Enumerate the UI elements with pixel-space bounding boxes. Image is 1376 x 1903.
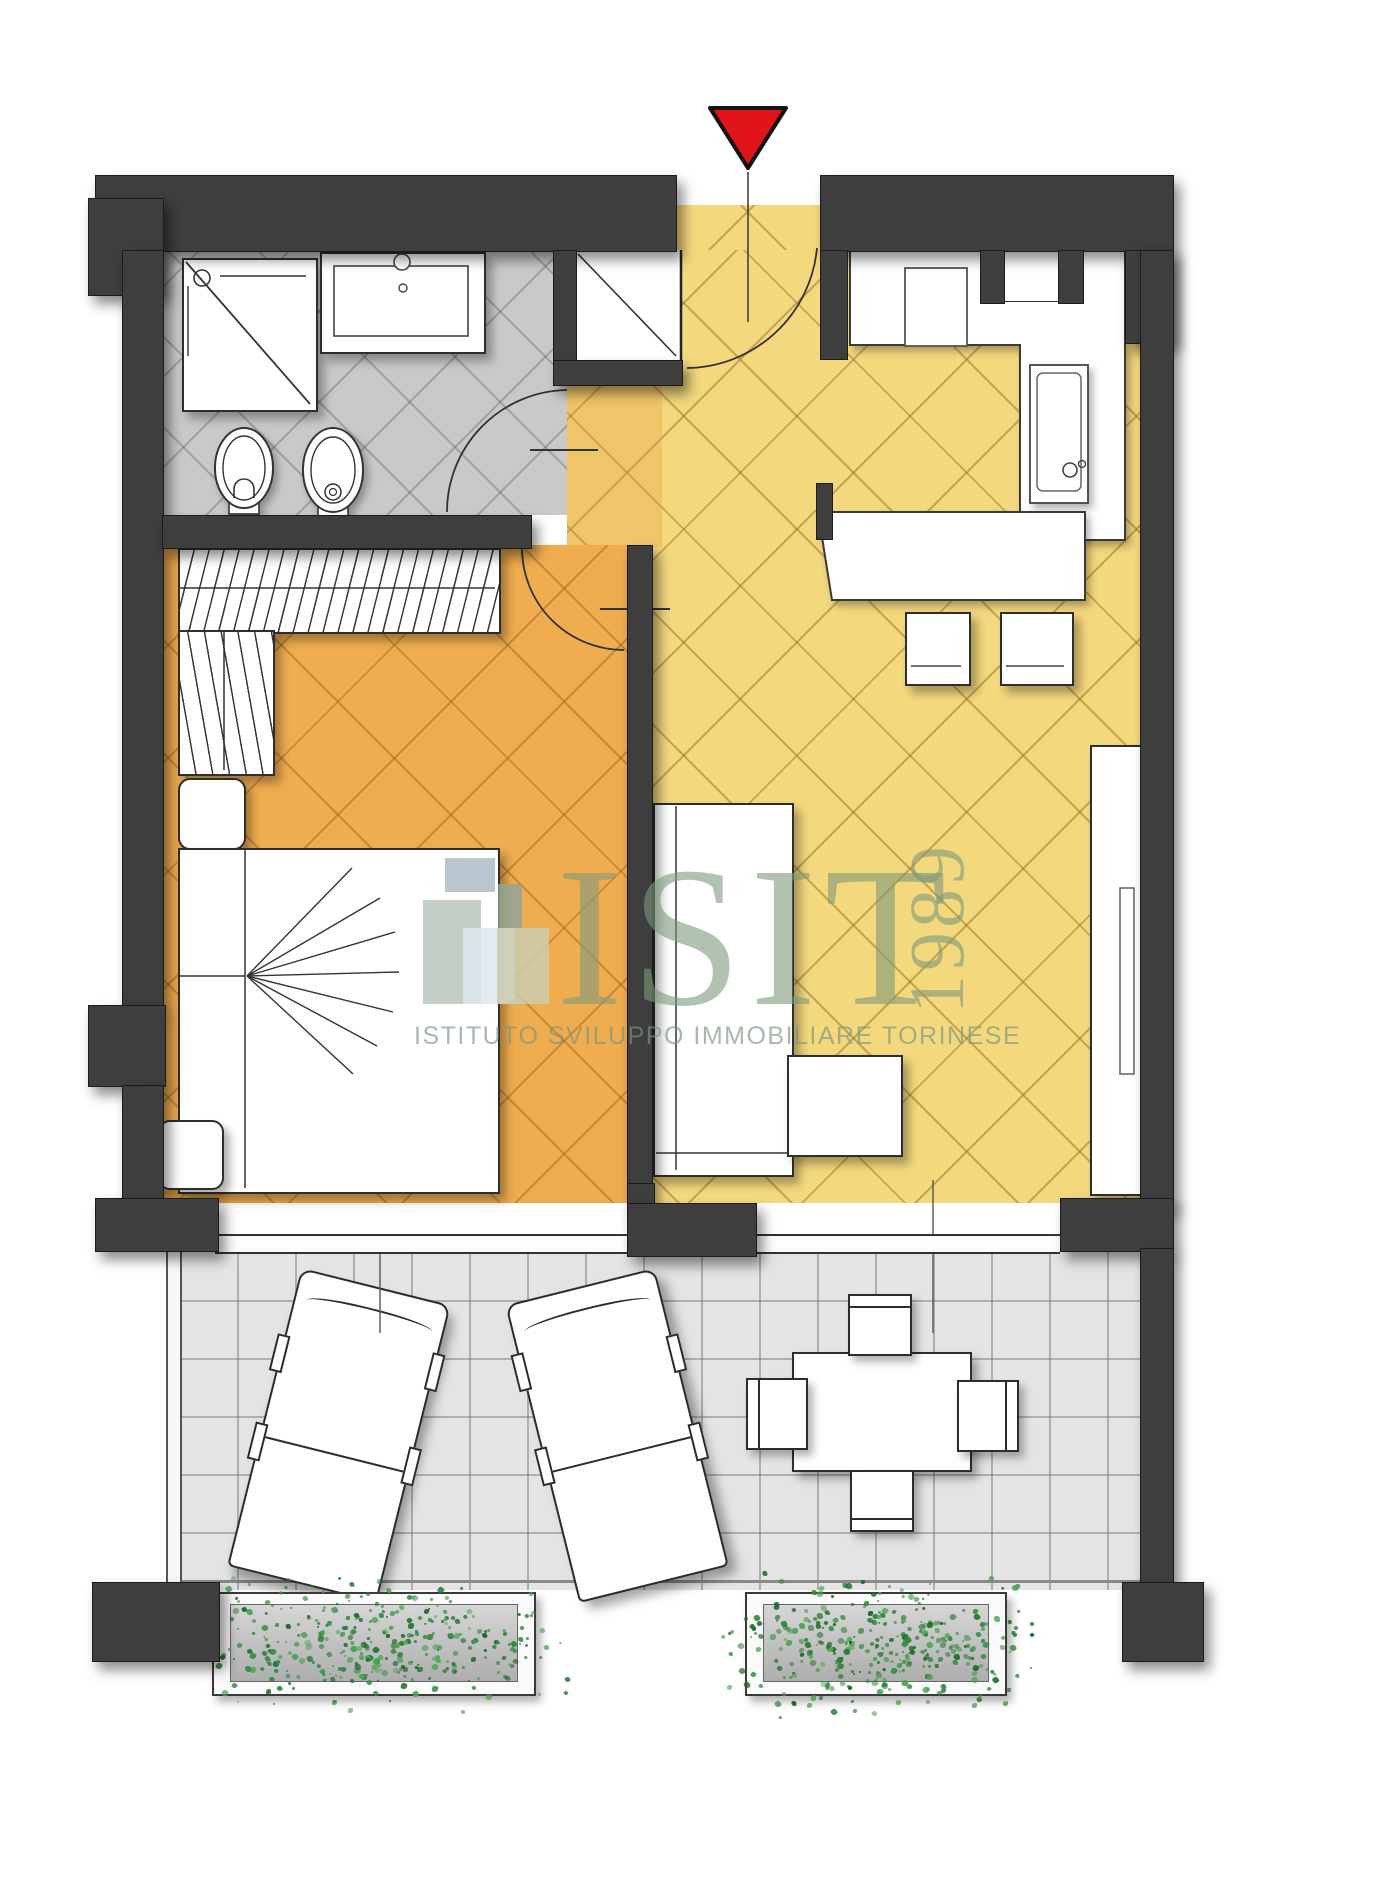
foliage-speck: [853, 1635, 856, 1638]
foliage-speck: [970, 1646, 976, 1652]
foliage-speck: [424, 1652, 428, 1656]
foliage-speck: [984, 1622, 989, 1627]
foliage-speck: [462, 1614, 468, 1620]
foliage-speck: [318, 1643, 325, 1650]
foliage-speck: [876, 1689, 884, 1697]
foliage-speck: [824, 1620, 830, 1626]
foliage-speck: [932, 1620, 939, 1627]
foliage-speck: [851, 1699, 855, 1703]
foliage-speck: [915, 1608, 918, 1611]
foliage-speck: [344, 1655, 346, 1657]
foliage-speck: [265, 1611, 268, 1614]
foliage-speck: [325, 1636, 330, 1641]
foliage-speck: [790, 1662, 794, 1666]
foliage-speck: [359, 1654, 365, 1660]
foliage-speck: [461, 1637, 467, 1643]
foliage-speck: [225, 1585, 233, 1593]
foliage-speck: [756, 1620, 763, 1627]
foliage-speck: [799, 1648, 804, 1653]
foliage-speck: [965, 1661, 971, 1667]
foliage-speck: [491, 1645, 497, 1651]
shower-drain: [194, 270, 210, 286]
foliage-speck: [815, 1667, 820, 1672]
foliage-speck: [483, 1656, 487, 1660]
foliage-speck: [236, 1643, 243, 1650]
foliage-speck: [286, 1624, 291, 1629]
foliage-speck: [992, 1676, 1000, 1684]
foliage-speck: [359, 1618, 363, 1622]
foliage-speck: [364, 1647, 369, 1652]
foliage-speck: [430, 1598, 434, 1602]
foliage-speck: [398, 1605, 404, 1611]
foliage-speck: [273, 1669, 278, 1674]
foliage-speck: [410, 1634, 413, 1637]
foliage-speck: [385, 1656, 388, 1659]
foliage-speck: [877, 1600, 880, 1603]
planter-foliage-left: [180, 1528, 572, 1754]
foliage-speck: [898, 1659, 901, 1662]
foliage-speck: [415, 1629, 418, 1632]
foliage-speck: [298, 1658, 305, 1665]
foliage-speck: [338, 1667, 342, 1671]
entrance-arrow-icon: [690, 96, 810, 176]
foliage-speck: [925, 1652, 929, 1656]
foliage-speck: [839, 1615, 845, 1621]
foliage-speck: [468, 1627, 471, 1630]
foliage-speck: [374, 1668, 380, 1674]
foliage-speck: [791, 1672, 797, 1678]
foliage-speck: [290, 1606, 293, 1609]
foliage-speck: [513, 1649, 517, 1653]
foliage-speck: [338, 1676, 342, 1680]
foliage-speck: [432, 1632, 436, 1636]
foliage-speck: [881, 1647, 885, 1651]
foliage-speck: [380, 1605, 384, 1609]
foliage-speck: [377, 1680, 380, 1683]
foliage-speck: [773, 1658, 779, 1664]
foliage-speck: [413, 1640, 416, 1643]
foliage-speck: [899, 1671, 901, 1673]
foliage-speck: [930, 1636, 933, 1639]
foliage-speck: [738, 1667, 746, 1675]
foliage-speck: [285, 1586, 288, 1589]
foliage-speck: [264, 1637, 268, 1641]
foliage-speck: [782, 1676, 786, 1680]
foliage-speck: [762, 1571, 767, 1576]
foliage-speck: [461, 1665, 465, 1669]
foliage-speck: [935, 1649, 939, 1653]
foliage-speck: [355, 1663, 361, 1669]
foliage-speck: [543, 1644, 550, 1651]
closet-diagonal: [578, 254, 676, 356]
foliage-speck: [819, 1662, 826, 1669]
foliage-speck: [921, 1597, 924, 1600]
foliage-speck: [503, 1628, 506, 1631]
foliage-speck: [972, 1702, 978, 1708]
foliage-speck: [853, 1672, 856, 1675]
foliage-speck: [979, 1663, 984, 1668]
foliage-speck: [729, 1652, 734, 1657]
foliage-speck: [935, 1628, 940, 1633]
foliage-speck: [791, 1608, 796, 1613]
foliage-speck: [348, 1708, 353, 1713]
foliage-speck: [786, 1640, 793, 1647]
foliage-speck: [286, 1670, 288, 1672]
foliage-speck: [366, 1679, 372, 1685]
foliage-speck: [985, 1667, 990, 1672]
foliage-speck: [296, 1623, 300, 1627]
foliage-speck: [359, 1674, 364, 1679]
foliage-speck: [520, 1626, 526, 1632]
foliage-speck: [468, 1680, 471, 1683]
foliage-speck: [397, 1657, 404, 1664]
foliage-speck: [471, 1657, 476, 1662]
foliage-speck: [459, 1632, 463, 1636]
foliage-speck: [524, 1655, 528, 1659]
foliage-speck: [221, 1689, 228, 1696]
foliage-speck: [292, 1687, 296, 1691]
foliage-speck: [228, 1648, 231, 1651]
foliage-speck: [330, 1677, 335, 1682]
foliage-speck: [454, 1618, 460, 1624]
foliage-speck: [807, 1625, 814, 1632]
foliage-speck: [804, 1641, 812, 1649]
kitchen-wall-niche: [1003, 250, 1060, 302]
foliage-speck: [871, 1710, 878, 1717]
foliage-speck: [962, 1639, 965, 1642]
foliage-speck: [496, 1661, 501, 1666]
foliage-speck: [721, 1634, 727, 1640]
foliage-speck: [918, 1602, 921, 1605]
foliage-speck: [260, 1624, 268, 1632]
foliage-speck: [270, 1603, 273, 1606]
foliage-speck: [778, 1646, 783, 1651]
foliage-speck: [887, 1584, 891, 1588]
foliage-speck: [386, 1616, 388, 1618]
foliage-speck: [251, 1619, 257, 1625]
foliage-speck: [331, 1606, 338, 1613]
foliage-speck: [799, 1660, 803, 1664]
foliage-speck: [870, 1590, 878, 1598]
foliage-speck: [737, 1642, 745, 1650]
vanity-tap: [394, 254, 410, 270]
wall-bedroom-living: [627, 545, 653, 1207]
foliage-speck: [539, 1628, 545, 1634]
foliage-speck: [467, 1646, 473, 1652]
foliage-speck: [790, 1700, 796, 1706]
foliage-speck: [335, 1675, 337, 1677]
foliage-speck: [899, 1588, 904, 1593]
foliage-speck: [781, 1691, 787, 1697]
foliage-speck: [279, 1608, 282, 1611]
foliage-speck: [923, 1632, 928, 1637]
wall-left-upper: [122, 250, 164, 1009]
foliage-speck: [807, 1619, 811, 1623]
foliage-speck: [1030, 1632, 1036, 1638]
foliage-speck: [532, 1610, 536, 1614]
foliage-speck: [424, 1623, 427, 1626]
foliage-speck: [518, 1613, 521, 1616]
foliage-speck: [896, 1634, 900, 1638]
foliage-speck: [756, 1646, 762, 1652]
foliage-speck: [815, 1631, 823, 1639]
foliage-speck: [1001, 1587, 1006, 1592]
wall-bath-bedroom: [162, 515, 532, 549]
foliage-speck: [888, 1651, 893, 1656]
foliage-speck: [808, 1650, 811, 1653]
foliage-speck: [537, 1692, 541, 1696]
toilet: [215, 428, 273, 514]
foliage-speck: [342, 1650, 345, 1653]
foliage-speck: [231, 1682, 238, 1689]
foliage-speck: [935, 1663, 939, 1667]
foliage-speck: [816, 1612, 823, 1619]
terrace-right-wall: [1140, 1248, 1174, 1590]
foliage-speck: [953, 1653, 960, 1660]
foliage-speck: [837, 1673, 845, 1681]
foliage-speck: [809, 1659, 817, 1667]
foliage-speck: [867, 1618, 873, 1624]
sink-basin: [1037, 373, 1081, 491]
foliage-speck: [728, 1632, 731, 1635]
foliage-speck: [953, 1660, 958, 1665]
foliage-speck: [447, 1626, 451, 1630]
foliage-speck: [371, 1616, 379, 1624]
foliage-speck: [431, 1662, 439, 1670]
foliage-speck: [839, 1680, 846, 1687]
foliage-speck: [973, 1613, 981, 1621]
foliage-speck: [938, 1656, 943, 1661]
foliage-speck: [340, 1632, 346, 1638]
foliage-speck: [437, 1649, 440, 1652]
foliage-speck: [476, 1676, 480, 1680]
foliage-speck: [338, 1577, 342, 1581]
foliage-speck: [927, 1593, 930, 1596]
foliage-speck: [295, 1675, 300, 1680]
foliage-speck: [421, 1643, 429, 1651]
foliage-speck: [503, 1632, 508, 1637]
foliage-speck: [810, 1695, 816, 1701]
foliage-speck: [483, 1649, 487, 1653]
foliage-speck: [859, 1671, 862, 1674]
bedroom-door-arc: [522, 548, 624, 650]
foliage-speck: [887, 1687, 891, 1691]
foliage-speck: [367, 1636, 370, 1639]
foliage-speck: [365, 1592, 370, 1597]
foliage-speck: [1029, 1667, 1032, 1670]
foliage-speck: [229, 1616, 234, 1621]
foliage-speck: [929, 1582, 932, 1585]
foliage-speck: [276, 1659, 282, 1665]
foliage-speck: [980, 1653, 987, 1660]
foliage-speck: [248, 1582, 252, 1586]
foliage-speck: [400, 1633, 405, 1638]
niche-tab-left: [980, 250, 1005, 304]
foliage-speck: [433, 1614, 437, 1618]
foliage-speck: [348, 1582, 354, 1588]
foliage-speck: [999, 1645, 1005, 1651]
foliage-speck: [539, 1655, 543, 1659]
foliage-speck: [287, 1577, 291, 1581]
foliage-speck: [877, 1592, 881, 1596]
foliage-speck: [389, 1610, 395, 1616]
foliage-speck: [850, 1603, 854, 1607]
foliage-speck: [858, 1628, 865, 1635]
foliage-speck: [502, 1656, 507, 1661]
wall-closet-bottom: [553, 360, 683, 386]
foliage-speck: [901, 1621, 906, 1626]
foliage-speck: [873, 1656, 877, 1660]
foliage-speck: [975, 1631, 982, 1638]
foliage-speck: [894, 1652, 898, 1656]
foliage-speck: [389, 1700, 391, 1702]
foliage-speck: [914, 1635, 920, 1641]
foliage-speck: [417, 1667, 422, 1672]
foliage-speck: [961, 1609, 965, 1613]
foliage-speck: [907, 1683, 913, 1689]
wall-top-right: [820, 175, 1174, 252]
foliage-speck: [853, 1709, 857, 1713]
foliage-speck: [1013, 1625, 1019, 1631]
foliage-speck: [390, 1648, 397, 1655]
foliage-speck: [852, 1641, 855, 1644]
foliage-speck: [460, 1587, 464, 1591]
foliage-speck: [447, 1632, 454, 1639]
foliage-speck: [826, 1612, 830, 1616]
foliage-speck: [809, 1654, 813, 1658]
wall-entrance-right-jamb: [820, 250, 848, 360]
foliage-speck: [347, 1635, 353, 1641]
foliage-speck: [372, 1645, 380, 1653]
foliage-speck: [981, 1627, 985, 1631]
foliage-speck: [563, 1690, 568, 1695]
kitchen-peninsula-table: [818, 512, 1085, 600]
foliage-speck: [891, 1668, 899, 1676]
foliage-speck: [233, 1658, 236, 1661]
foliage-speck: [273, 1703, 276, 1706]
foliage-speck: [770, 1634, 776, 1640]
foliage-speck: [370, 1670, 373, 1673]
foliage-speck: [344, 1642, 348, 1646]
foliage-speck: [525, 1644, 529, 1648]
foliage-speck: [963, 1645, 967, 1649]
foliage-speck: [401, 1682, 408, 1689]
foliage-speck: [511, 1641, 518, 1648]
foliage-speck: [1012, 1631, 1016, 1635]
foliage-speck: [927, 1656, 933, 1662]
foliage-speck: [883, 1621, 888, 1626]
foliage-speck: [529, 1591, 534, 1596]
foliage-speck: [428, 1676, 432, 1680]
foliage-speck: [869, 1663, 874, 1668]
foliage-speck: [812, 1590, 817, 1595]
foliage-speck: [889, 1638, 894, 1643]
foliage-speck: [847, 1685, 853, 1691]
foliage-speck: [845, 1583, 852, 1590]
foliage-speck: [971, 1676, 979, 1684]
foliage-speck: [268, 1676, 274, 1682]
foliage-speck: [233, 1607, 240, 1614]
foliage-speck: [921, 1606, 926, 1611]
wall-top-left: [95, 175, 677, 252]
foliage-speck: [230, 1575, 237, 1582]
foliage-speck: [778, 1578, 785, 1585]
foliage-speck: [744, 1681, 751, 1688]
foliage-speck: [504, 1676, 511, 1683]
entrance-door-arc: [687, 248, 817, 368]
foliage-speck: [252, 1632, 256, 1636]
foliage-speck: [375, 1602, 379, 1606]
foliage-speck: [431, 1620, 434, 1623]
sideboard-handle: [1120, 888, 1134, 1074]
foliage-speck: [1008, 1619, 1012, 1623]
foliage-speck: [863, 1601, 868, 1606]
foliage-speck: [883, 1668, 886, 1671]
foliage-speck: [320, 1629, 325, 1634]
terrace-pier-right: [1122, 1582, 1204, 1662]
foliage-speck: [321, 1590, 324, 1593]
foliage-speck: [804, 1609, 809, 1614]
foliage-speck: [327, 1621, 332, 1626]
foliage-speck: [336, 1602, 339, 1605]
foliage-speck: [819, 1696, 823, 1700]
foliage-speck: [446, 1660, 450, 1664]
foliage-speck: [927, 1673, 934, 1680]
foliage-speck: [408, 1623, 415, 1630]
foliage-speck: [303, 1596, 309, 1602]
foliage-speck: [830, 1708, 838, 1716]
foliage-speck: [285, 1641, 287, 1643]
foliage-speck: [939, 1622, 942, 1625]
fridge: [905, 268, 967, 346]
foliage-speck: [305, 1644, 312, 1651]
pier-bottom-right: [1060, 1198, 1174, 1252]
foliage-speck: [891, 1609, 897, 1615]
foliage-speck: [215, 1662, 223, 1670]
foliage-speck: [402, 1666, 407, 1671]
foliage-speck: [1014, 1673, 1019, 1678]
foliage-speck: [866, 1679, 870, 1683]
foliage-speck: [885, 1643, 889, 1647]
bidet: [303, 428, 363, 516]
foliage-speck: [497, 1671, 500, 1674]
foliage-speck: [940, 1687, 946, 1693]
foliage-speck: [750, 1671, 756, 1677]
foliage-speck: [1003, 1700, 1008, 1705]
foliage-speck: [799, 1623, 806, 1630]
foliage-speck: [775, 1628, 782, 1635]
foliage-speck: [481, 1633, 487, 1639]
foliage-speck: [859, 1643, 865, 1649]
foliage-speck: [744, 1616, 748, 1620]
foliage-speck: [976, 1696, 982, 1702]
foliage-speck: [431, 1685, 438, 1692]
foliage-speck: [949, 1613, 957, 1621]
foliage-speck: [449, 1600, 453, 1604]
vanity-basin: [334, 266, 468, 336]
foliage-speck: [269, 1648, 277, 1656]
foliage-speck: [921, 1665, 925, 1669]
foliage-speck: [908, 1627, 912, 1631]
foliage-speck: [949, 1646, 953, 1650]
foliage-speck: [861, 1579, 865, 1583]
foliage-speck: [774, 1700, 782, 1708]
foliage-speck: [403, 1675, 407, 1679]
foliage-speck: [758, 1684, 763, 1689]
foliage-speck: [849, 1663, 852, 1666]
foliage-speck: [902, 1595, 906, 1599]
foliage-speck: [348, 1599, 351, 1602]
